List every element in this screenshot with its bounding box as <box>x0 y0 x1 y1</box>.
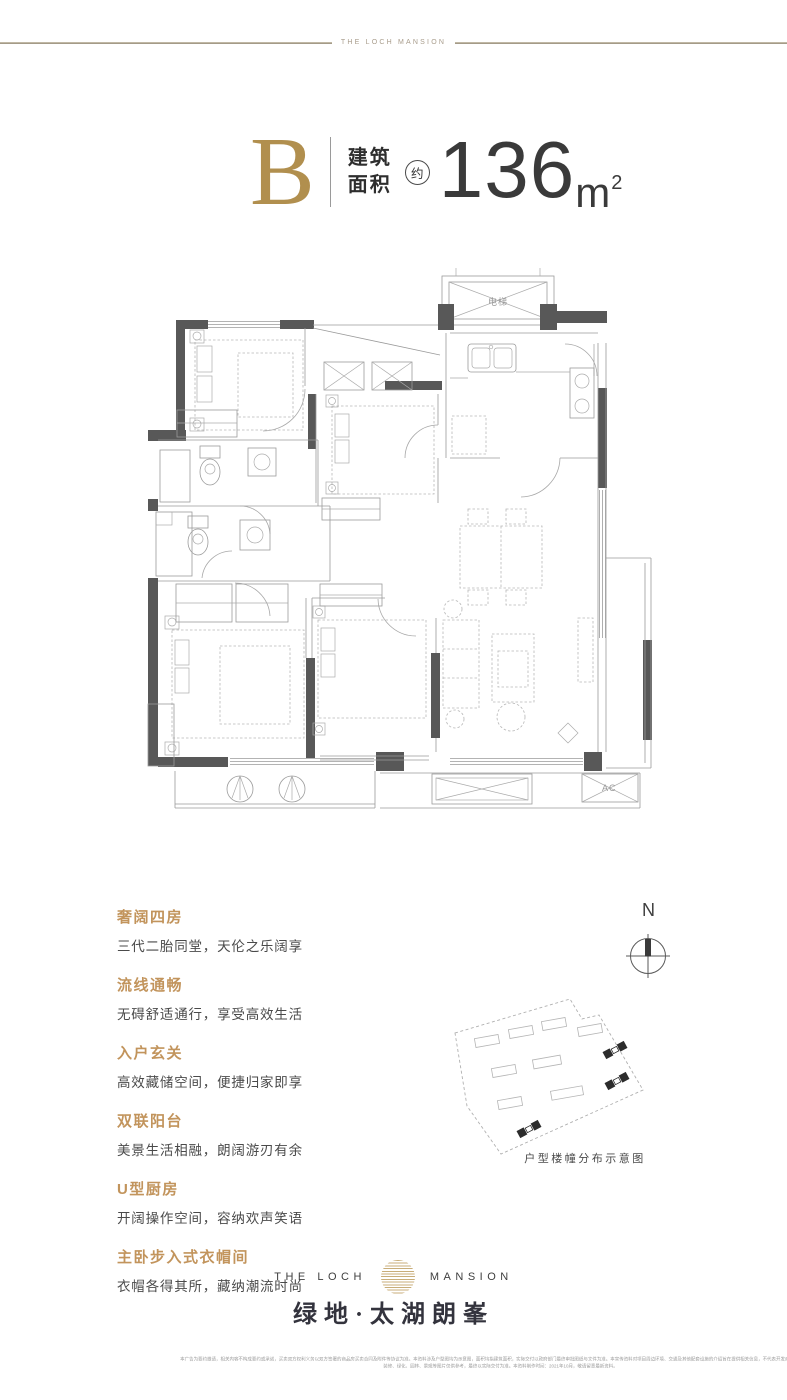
area-label-line1: 建筑 <box>348 145 392 172</box>
feature-title: U型厨房 <box>117 1178 347 1199</box>
logo-text-right: MANSION <box>430 1271 513 1283</box>
unit-header: B 建筑 面积 约 136 m2 <box>250 124 621 220</box>
approx-circle-badge: 约 <box>405 160 430 185</box>
bathroom-fixtures <box>156 446 276 576</box>
kitchen-fixtures <box>450 344 594 454</box>
bedroom3-furniture <box>313 584 426 735</box>
feature-list: 奢阔四房 三代二胎同堂，天伦之乐阔享 流线通畅 无碍舒适通行，享受高效生活 入户… <box>117 906 347 1314</box>
compass-icon: N <box>620 896 676 996</box>
unit-letter: B <box>250 128 315 216</box>
walls <box>148 304 652 771</box>
area-label-line2: 面积 <box>348 172 392 199</box>
header-divider <box>330 137 331 207</box>
decorative-rule-left <box>0 42 332 44</box>
page: THE LOCH MANSION B 建筑 面积 约 136 m2 <box>0 0 787 1400</box>
feature-title: 双联阳台 <box>117 1110 347 1131</box>
area-unit-m: m <box>575 169 610 216</box>
footer-disclaimer: 本广告为要约邀请，相关内容不构成要约或承诺，买卖双方权利义务以双方签署的商品房买… <box>0 1356 787 1379</box>
top-brand-text: THE LOCH MANSION <box>332 39 455 46</box>
disclaimer-line-2: 装修、绿化、园林、景观等图片仅供参考，最终以实际交付为准。本资料制作时间：202… <box>180 1363 787 1370</box>
elevator-shaft: 电梯 <box>442 268 554 325</box>
feature-title: 奢阔四房 <box>117 906 347 927</box>
feature-desc: 高效藏储空间，便捷归家即享 <box>117 1071 347 1091</box>
feature-title: 流线通畅 <box>117 974 347 995</box>
site-buildings-outline <box>474 1017 602 1109</box>
feature-desc: 美景生活相融，朗阔游刃有余 <box>117 1139 347 1159</box>
bedroom1-furniture <box>177 330 303 437</box>
feature-item: U型厨房 开阔操作空间，容纳欢声笑语 <box>117 1178 347 1227</box>
dining-set <box>460 509 542 605</box>
area-label: 建筑 面积 <box>348 145 392 199</box>
disclaimer-line-1: 本广告为要约邀请，相关内容不构成要约或承诺，买卖双方权利义务以双方签署的商品房买… <box>180 1356 787 1363</box>
area-unit-sup: 2 <box>611 172 622 194</box>
feature-title: 入户玄关 <box>117 1042 347 1063</box>
ac-label: AC <box>602 783 617 793</box>
area-unit: m2 <box>575 169 621 210</box>
feature-item: 入户玄关 高效藏储空间，便捷归家即享 <box>117 1042 347 1091</box>
feature-item: 流线通畅 无碍舒适通行，享受高效生活 <box>117 974 347 1023</box>
logo-text-left: THE LOCH <box>274 1271 366 1283</box>
bedroom2-furniture <box>322 395 434 520</box>
floor-plan-drawing: 电梯 <box>140 268 660 828</box>
feature-desc: 开阔操作空间，容纳欢声笑语 <box>117 1207 347 1227</box>
master-bedroom-furniture <box>165 584 304 755</box>
thin-walls <box>158 322 651 809</box>
logo-emblem-icon <box>381 1260 415 1294</box>
site-buildings-highlighted <box>517 1041 630 1138</box>
site-plan-map: 户型楼幢分布示意图 <box>447 986 659 1172</box>
feature-desc: 三代二胎同堂，天伦之乐阔享 <box>117 935 347 955</box>
living-room-furniture <box>443 600 593 743</box>
elevator-label: 电梯 <box>488 296 508 307</box>
area-value: 136 <box>439 130 575 210</box>
feature-desc: 无碍舒适通行，享受高效生活 <box>117 1003 347 1023</box>
feature-item: 双联阳台 美景生活相融，朗阔游刃有余 <box>117 1110 347 1159</box>
brand-name-chinese: 绿地·太湖朗峯 <box>0 1294 787 1329</box>
top-brand-bar: THE LOCH MANSION <box>0 39 787 46</box>
decorative-rule-right <box>455 42 787 44</box>
compass-north-label: N <box>642 900 655 920</box>
feature-item: 奢阔四房 三代二胎同堂，天伦之乐阔享 <box>117 906 347 955</box>
site-plan-caption: 户型楼幢分布示意图 <box>524 1151 646 1165</box>
footer-logo: THE LOCH MANSION <box>0 1260 787 1294</box>
